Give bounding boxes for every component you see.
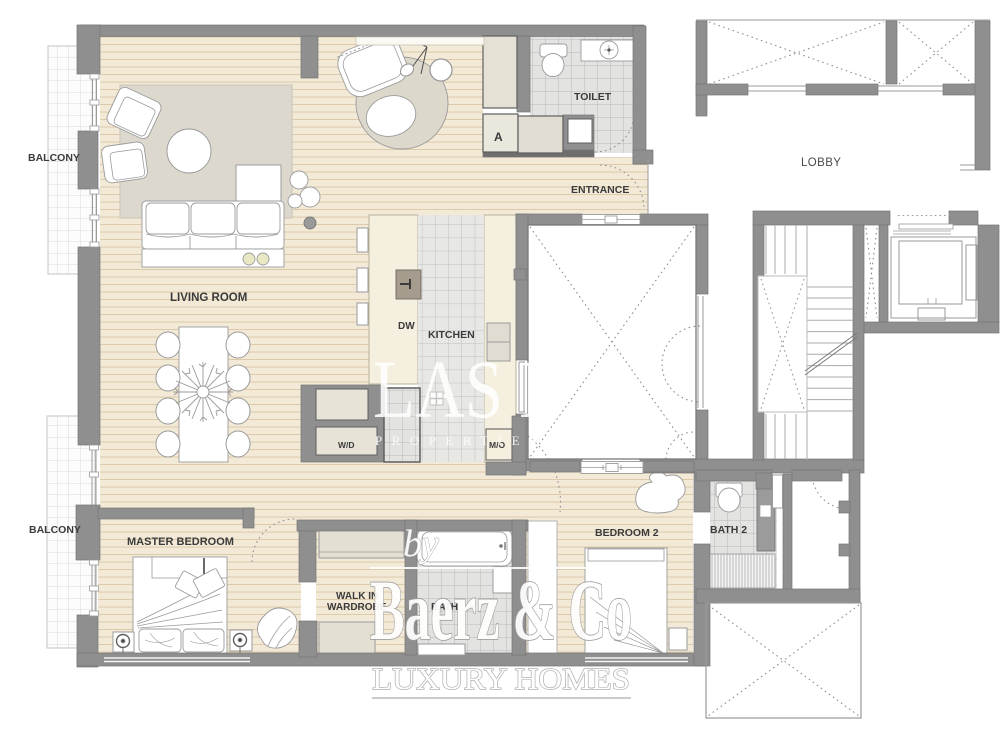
svg-text:A: A (494, 130, 503, 144)
svg-text:ENTRANCE: ENTRANCE (571, 184, 629, 196)
svg-text:BATH 2: BATH 2 (710, 524, 747, 536)
svg-text:LAS: LAS (373, 343, 503, 435)
svg-text:I: I (518, 343, 546, 435)
svg-text:LOBBY: LOBBY (801, 157, 841, 169)
svg-text:LUXURY HOMES: LUXURY HOMES (372, 661, 630, 696)
svg-text:BALCONY: BALCONY (29, 524, 81, 536)
svg-text:Baerz & Co: Baerz & Co (370, 562, 632, 658)
svg-text:W/D: W/D (338, 440, 355, 450)
svg-text:TOILET: TOILET (574, 91, 612, 103)
svg-text:MASTER BEDROOM: MASTER BEDROOM (127, 536, 234, 548)
svg-text:KITCHEN: KITCHEN (428, 329, 475, 341)
svg-text:PROPERTIES: PROPERTIES (375, 433, 546, 448)
svg-text:by: by (403, 523, 439, 565)
svg-text:LIVING ROOM: LIVING ROOM (170, 292, 247, 304)
svg-text:DW: DW (398, 321, 415, 332)
svg-text:BALCONY: BALCONY (28, 152, 80, 164)
svg-text:BEDROOM 2: BEDROOM 2 (595, 527, 659, 539)
